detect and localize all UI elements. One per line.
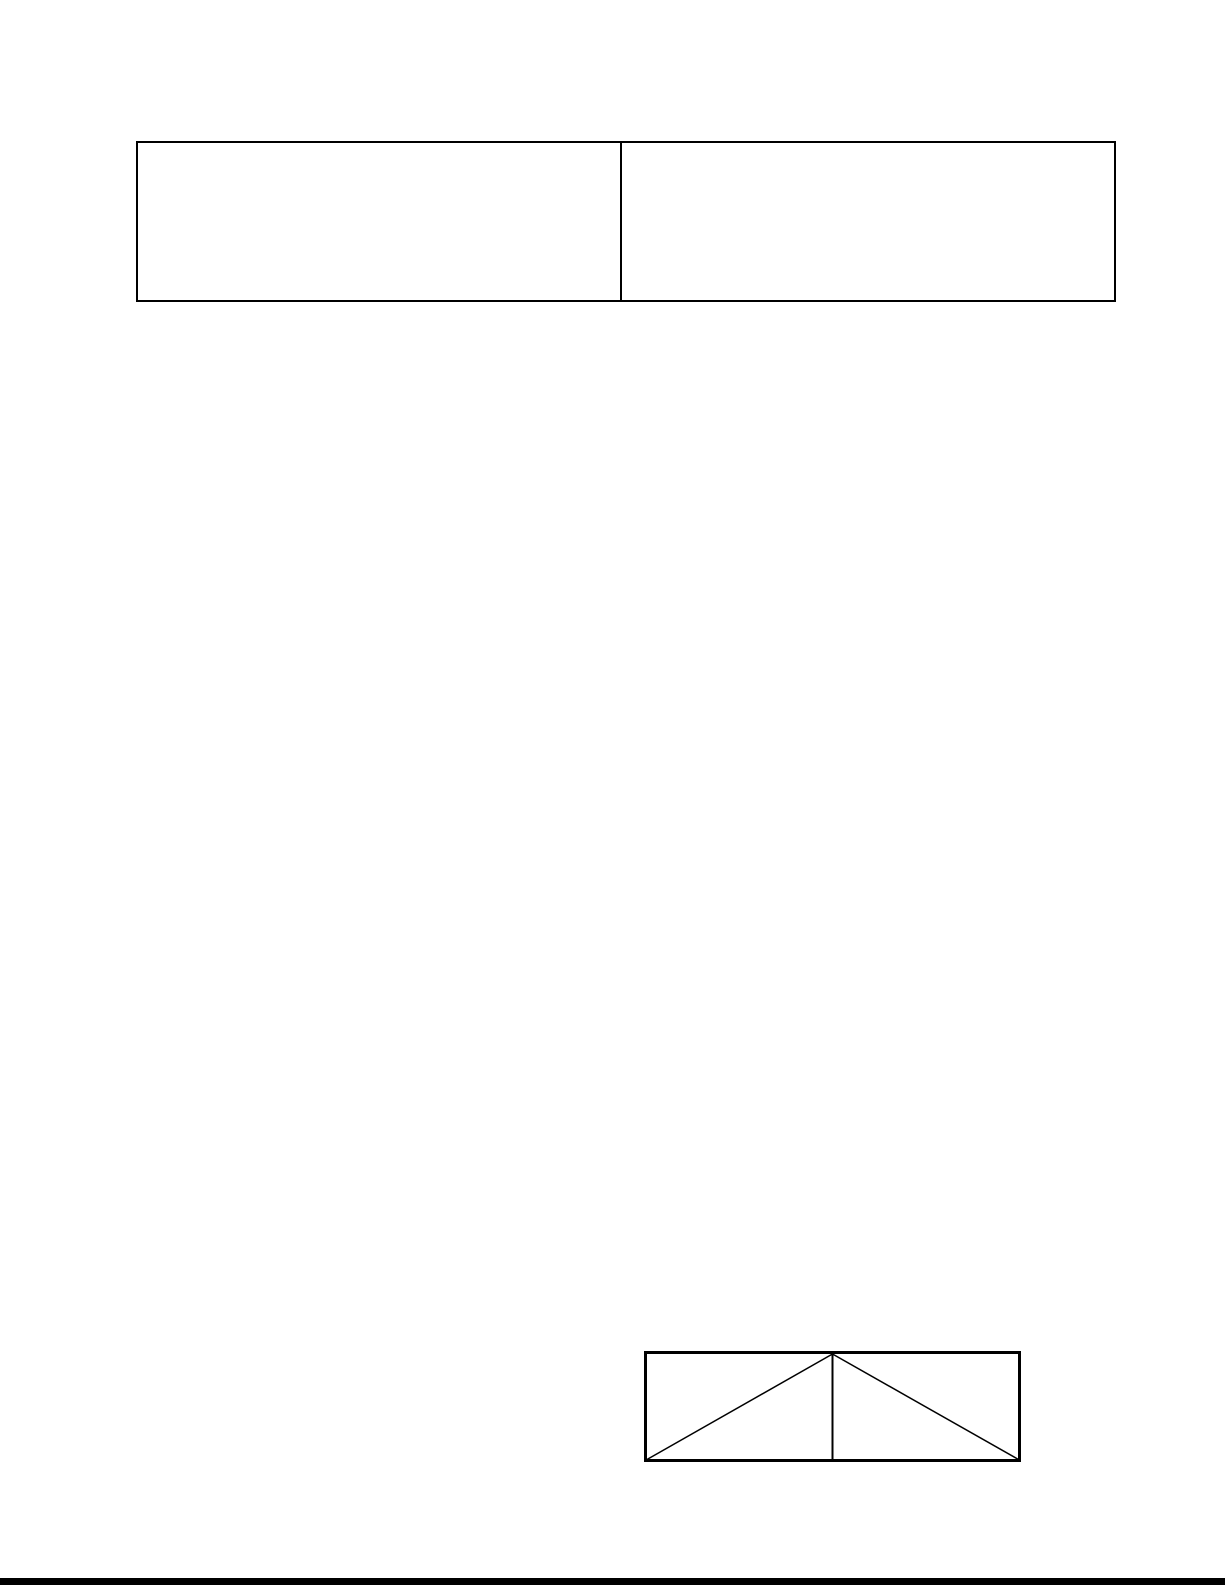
two-column-table	[136, 141, 1116, 302]
table-cell-left[interactable]	[138, 143, 622, 300]
drawing-left-diagonal	[647, 1354, 833, 1460]
bottom-edge-strip	[0, 1578, 1225, 1585]
split-rectangle-drawing[interactable]	[644, 1351, 1021, 1462]
drawing-right-diagonal	[833, 1354, 1019, 1460]
split-rectangle-svg	[644, 1351, 1021, 1462]
table-cell-right[interactable]	[622, 143, 1114, 300]
document-page	[0, 0, 1225, 1585]
